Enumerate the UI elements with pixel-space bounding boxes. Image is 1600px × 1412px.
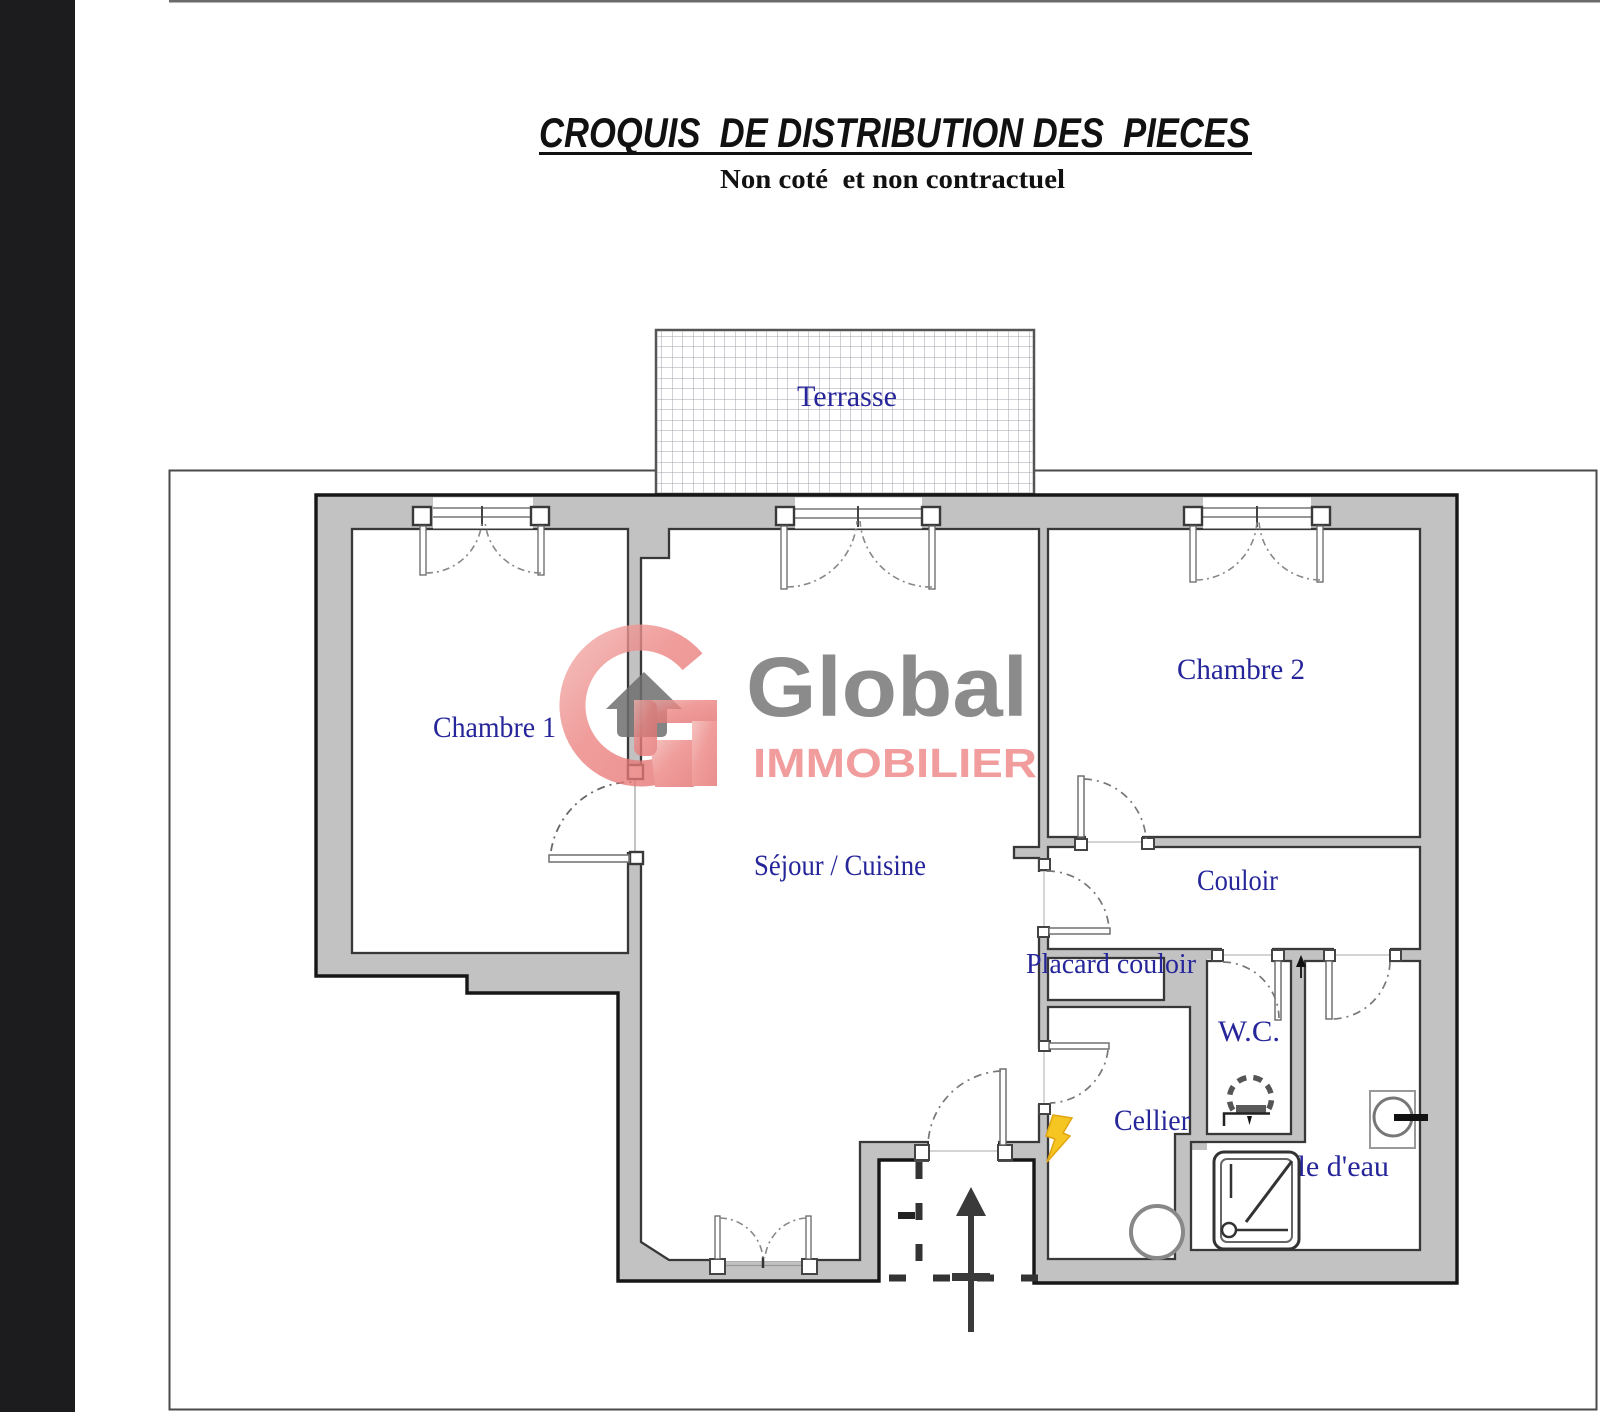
svg-text:Chambre 2: Chambre 2 xyxy=(1177,654,1305,686)
svg-text:Placard couloir: Placard couloir xyxy=(1026,949,1196,980)
svg-text:Cellier: Cellier xyxy=(1114,1105,1190,1137)
svg-text:CROQUIS DE DISTRIBUTION DES: CROQUIS DE DISTRIBUTION DES PIECES xyxy=(539,109,1250,157)
svg-text:Chambre 1: Chambre 1 xyxy=(433,712,556,744)
svg-text:Terrasse: Terrasse xyxy=(797,381,897,413)
svg-text:W.C.: W.C. xyxy=(1218,1016,1280,1048)
svg-text:Couloir: Couloir xyxy=(1197,865,1278,897)
svg-text:Global: Global xyxy=(746,640,1028,734)
svg-text:IMMOBILIER: IMMOBILIER xyxy=(753,740,1037,786)
svg-text:Séjour / Cuisine: Séjour / Cuisine xyxy=(754,850,926,882)
svg-text:Non coté et non contractuel: Non coté et non contractuel xyxy=(720,164,1066,194)
